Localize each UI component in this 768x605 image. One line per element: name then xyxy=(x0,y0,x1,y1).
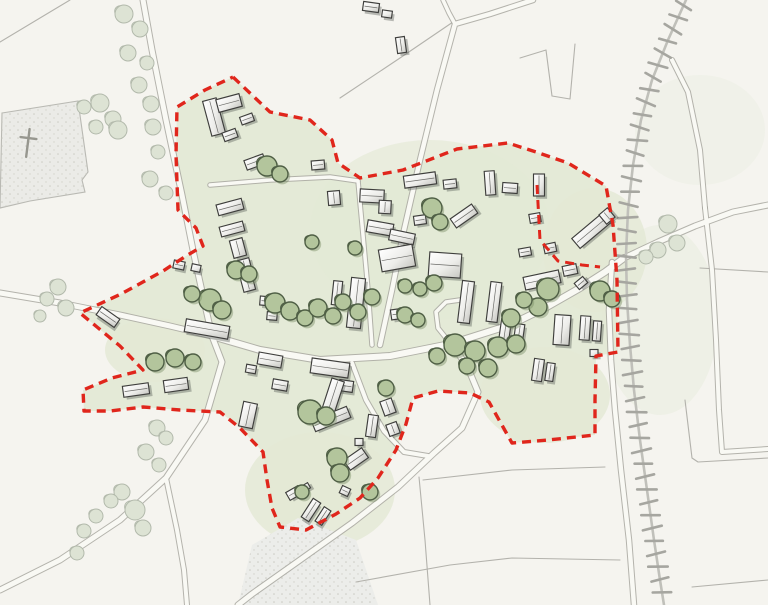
tree-crown xyxy=(159,431,173,445)
building xyxy=(553,314,574,348)
tree-crown xyxy=(639,250,653,264)
tree-crown xyxy=(213,301,231,319)
tree-crown xyxy=(120,45,136,61)
faded-tree xyxy=(77,100,91,114)
building xyxy=(484,170,498,198)
tree-crown xyxy=(669,235,685,251)
tree-crown xyxy=(426,275,442,291)
tree-crown xyxy=(537,278,559,300)
faded-tree xyxy=(120,45,136,61)
tree-crown xyxy=(479,359,497,377)
faded-tree xyxy=(143,96,159,112)
tree-crown xyxy=(142,171,158,187)
tree-crown xyxy=(413,282,427,296)
tree-crown xyxy=(411,313,425,327)
tree-crown xyxy=(659,215,677,233)
tree-crown xyxy=(459,358,475,374)
tree-crown xyxy=(109,121,127,139)
tree-crown xyxy=(146,353,164,371)
tree-crown xyxy=(281,302,299,320)
tree-crown xyxy=(104,494,118,508)
faded-tree xyxy=(659,215,677,233)
faded-tree xyxy=(138,444,154,460)
tree-crown xyxy=(516,292,532,308)
tree-crown xyxy=(350,304,366,320)
building xyxy=(534,174,548,199)
cemetery-area xyxy=(0,101,88,208)
faded-tree xyxy=(135,520,151,536)
tree-crown xyxy=(132,21,148,37)
tree-crown xyxy=(502,309,520,327)
faded-tree xyxy=(142,171,158,187)
faded-tree xyxy=(125,500,145,520)
cemetery-stipple xyxy=(0,101,88,208)
faded-tree xyxy=(131,77,147,93)
tree-crown xyxy=(140,56,154,70)
faded-tree xyxy=(89,120,103,134)
tree-crown xyxy=(89,509,103,523)
faded-tree xyxy=(152,458,166,472)
faded-tree xyxy=(159,186,173,200)
building-footprint xyxy=(191,264,201,273)
tree-crown xyxy=(40,292,54,306)
faded-tree xyxy=(639,250,653,264)
tree-crown xyxy=(507,335,525,353)
faded-tree xyxy=(104,494,118,508)
tree-crown xyxy=(348,241,362,255)
building-footprint xyxy=(382,10,393,18)
tree-crown xyxy=(115,5,133,23)
faded-tree xyxy=(58,300,74,316)
tree-crown xyxy=(364,289,380,305)
faded-tree xyxy=(151,145,165,159)
tree-crown xyxy=(131,77,147,93)
faded-tree xyxy=(40,292,54,306)
tree-crown xyxy=(89,120,103,134)
faded-tree xyxy=(159,431,173,445)
tree-crown xyxy=(184,286,200,302)
tree-crown xyxy=(429,348,445,364)
tree-crown xyxy=(335,294,351,310)
tree-crown xyxy=(58,300,74,316)
building-footprint xyxy=(355,439,363,446)
faded-tree xyxy=(109,121,127,139)
tree-crown xyxy=(295,485,309,499)
tree-crown xyxy=(77,100,91,114)
tree-crown xyxy=(70,546,84,560)
tree-crown xyxy=(135,520,151,536)
tree-crown xyxy=(432,214,448,230)
tree-crown xyxy=(378,380,394,396)
tree-crown xyxy=(138,444,154,460)
village-site-plan-map xyxy=(0,0,768,605)
green-wash-blob xyxy=(480,347,610,443)
tree-crown xyxy=(325,308,341,324)
faded-tree xyxy=(91,94,109,112)
faded-tree xyxy=(669,235,685,251)
tree-crown xyxy=(151,145,165,159)
faded-tree xyxy=(89,509,103,523)
tree-crown xyxy=(272,166,288,182)
tree-crown xyxy=(91,94,109,112)
tree-crown xyxy=(159,186,173,200)
tree-crown xyxy=(166,349,184,367)
tree-crown xyxy=(152,458,166,472)
tree-crown xyxy=(488,337,508,357)
tree-crown xyxy=(317,407,335,425)
tree-crown xyxy=(241,266,257,282)
faded-tree xyxy=(132,21,148,37)
building xyxy=(579,316,593,344)
tree-crown xyxy=(145,119,161,135)
faded-tree xyxy=(145,119,161,135)
village-site-plan xyxy=(0,0,768,605)
building xyxy=(592,321,604,344)
tree-crown xyxy=(143,96,159,112)
faded-tree xyxy=(34,310,46,322)
tree-crown xyxy=(125,500,145,520)
tree-crown xyxy=(50,279,66,295)
tree-crown xyxy=(398,279,412,293)
tree-crown xyxy=(331,464,349,482)
building xyxy=(502,182,520,196)
faded-tree xyxy=(50,279,66,295)
tree-crown xyxy=(444,334,466,356)
faded-tree xyxy=(70,546,84,560)
tree-crown xyxy=(185,354,201,370)
tree-crown xyxy=(77,524,91,538)
faded-tree xyxy=(115,5,133,23)
faded-tree xyxy=(140,56,154,70)
faded-tree xyxy=(77,524,91,538)
tree-crown xyxy=(305,235,319,249)
tree-crown xyxy=(34,310,46,322)
